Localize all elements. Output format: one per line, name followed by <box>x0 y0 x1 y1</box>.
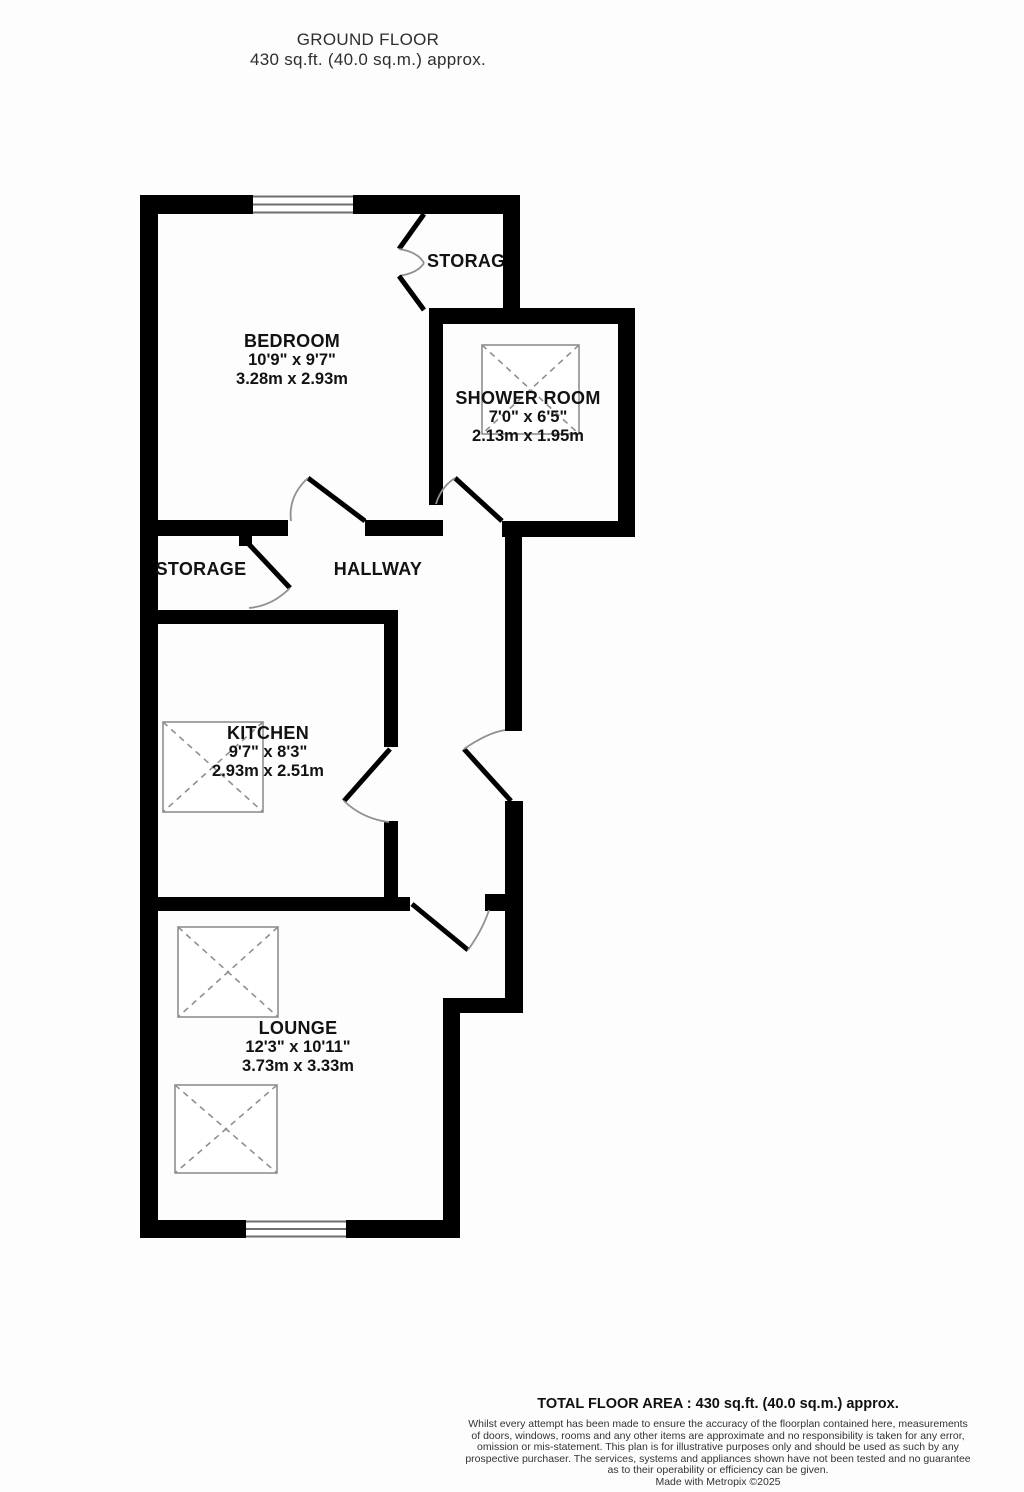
wall-segment <box>353 195 520 214</box>
room-label-storage-top: STORAGE <box>427 252 503 274</box>
door-arc <box>464 730 505 749</box>
wall-segment <box>140 1220 246 1238</box>
credit-line: Made with Metropix ©2025 <box>412 1477 1024 1489</box>
room-dim-imperial: 9'7" x 8'3" <box>118 743 418 762</box>
wall-segment <box>505 537 522 731</box>
window-bottom <box>246 1220 346 1238</box>
total-floor-area: TOTAL FLOOR AREA : 430 sq.ft. (40.0 sq.m… <box>412 1396 1024 1412</box>
door-arc <box>468 910 489 950</box>
room-dim-imperial: 12'3" x 10'11" <box>148 1038 448 1057</box>
room-dim-metric: 3.28m x 2.93m <box>142 370 442 389</box>
door-bedroom <box>291 478 365 521</box>
wall-segment <box>485 894 505 911</box>
wall-segment <box>502 521 635 537</box>
door-arc <box>344 801 389 822</box>
room-name: LOUNGE <box>148 1019 448 1038</box>
room-label-lounge: LOUNGE 12'3" x 10'11" 3.73m x 3.33m <box>148 1019 448 1076</box>
bifold-door-storage-top <box>399 214 424 310</box>
door-lounge <box>412 904 489 950</box>
room-name: BEDROOM <box>142 332 442 351</box>
wall-segment <box>140 520 288 536</box>
wall-segment <box>346 1220 460 1238</box>
room-label-hallway: HALLWAY <box>278 560 478 579</box>
room-dim-metric: 2.93m x 2.51m <box>118 762 418 781</box>
skylight-box-lounge-2 <box>175 1085 277 1173</box>
room-name: HALLWAY <box>334 559 422 579</box>
door-leaf <box>412 904 468 950</box>
door-leaf <box>464 749 511 801</box>
room-name: SHOWER ROOM <box>378 389 678 408</box>
room-dim-metric: 2.13m x 1.95m <box>378 427 678 446</box>
wall-segment <box>429 308 635 324</box>
door-leaf <box>455 478 502 521</box>
wall-segment <box>140 610 398 624</box>
wall-segment <box>384 821 398 897</box>
room-name: KITCHEN <box>118 724 418 743</box>
room-label-storage-left: STORAGE <box>101 560 301 579</box>
wall-segment <box>503 195 520 320</box>
wall-segment <box>505 801 523 1013</box>
room-name: STORAGE <box>156 559 247 579</box>
room-label-bedroom: BEDROOM 10'9" x 9'7" 3.28m x 2.93m <box>142 332 442 389</box>
floorplan-page: GROUND FLOOR 430 sq.ft. (40.0 sq.m.) app… <box>0 0 1024 1492</box>
room-label-kitchen: KITCHEN 9'7" x 8'3" 2.93m x 2.51m <box>118 724 418 781</box>
door-leaf <box>308 478 365 521</box>
room-name: STORAGE <box>427 252 503 271</box>
room-dim-imperial: 7'0" x 6'5" <box>378 408 678 427</box>
room-dim-imperial: 10'9" x 9'7" <box>142 351 442 370</box>
window-top <box>253 195 353 214</box>
wall-segment <box>365 520 443 536</box>
door-arc <box>399 249 424 263</box>
door-arc <box>399 263 424 276</box>
footer-block: TOTAL FLOOR AREA : 430 sq.ft. (40.0 sq.m… <box>412 1396 1024 1489</box>
door-leaf <box>399 214 424 249</box>
door-entrance <box>464 730 511 801</box>
wall-segment <box>140 897 410 911</box>
room-label-shower-room: SHOWER ROOM 7'0" x 6'5" 2.13m x 1.95m <box>378 389 678 446</box>
door-shower-room <box>436 478 502 521</box>
room-dim-metric: 3.73m x 3.33m <box>148 1057 448 1076</box>
skylight-box-lounge-1 <box>178 927 278 1017</box>
door-arc <box>249 588 290 608</box>
door-leaf <box>399 276 424 310</box>
disclaimer-line: Whilst every attempt has been made to en… <box>412 1419 1024 1431</box>
door-arc <box>291 478 308 521</box>
